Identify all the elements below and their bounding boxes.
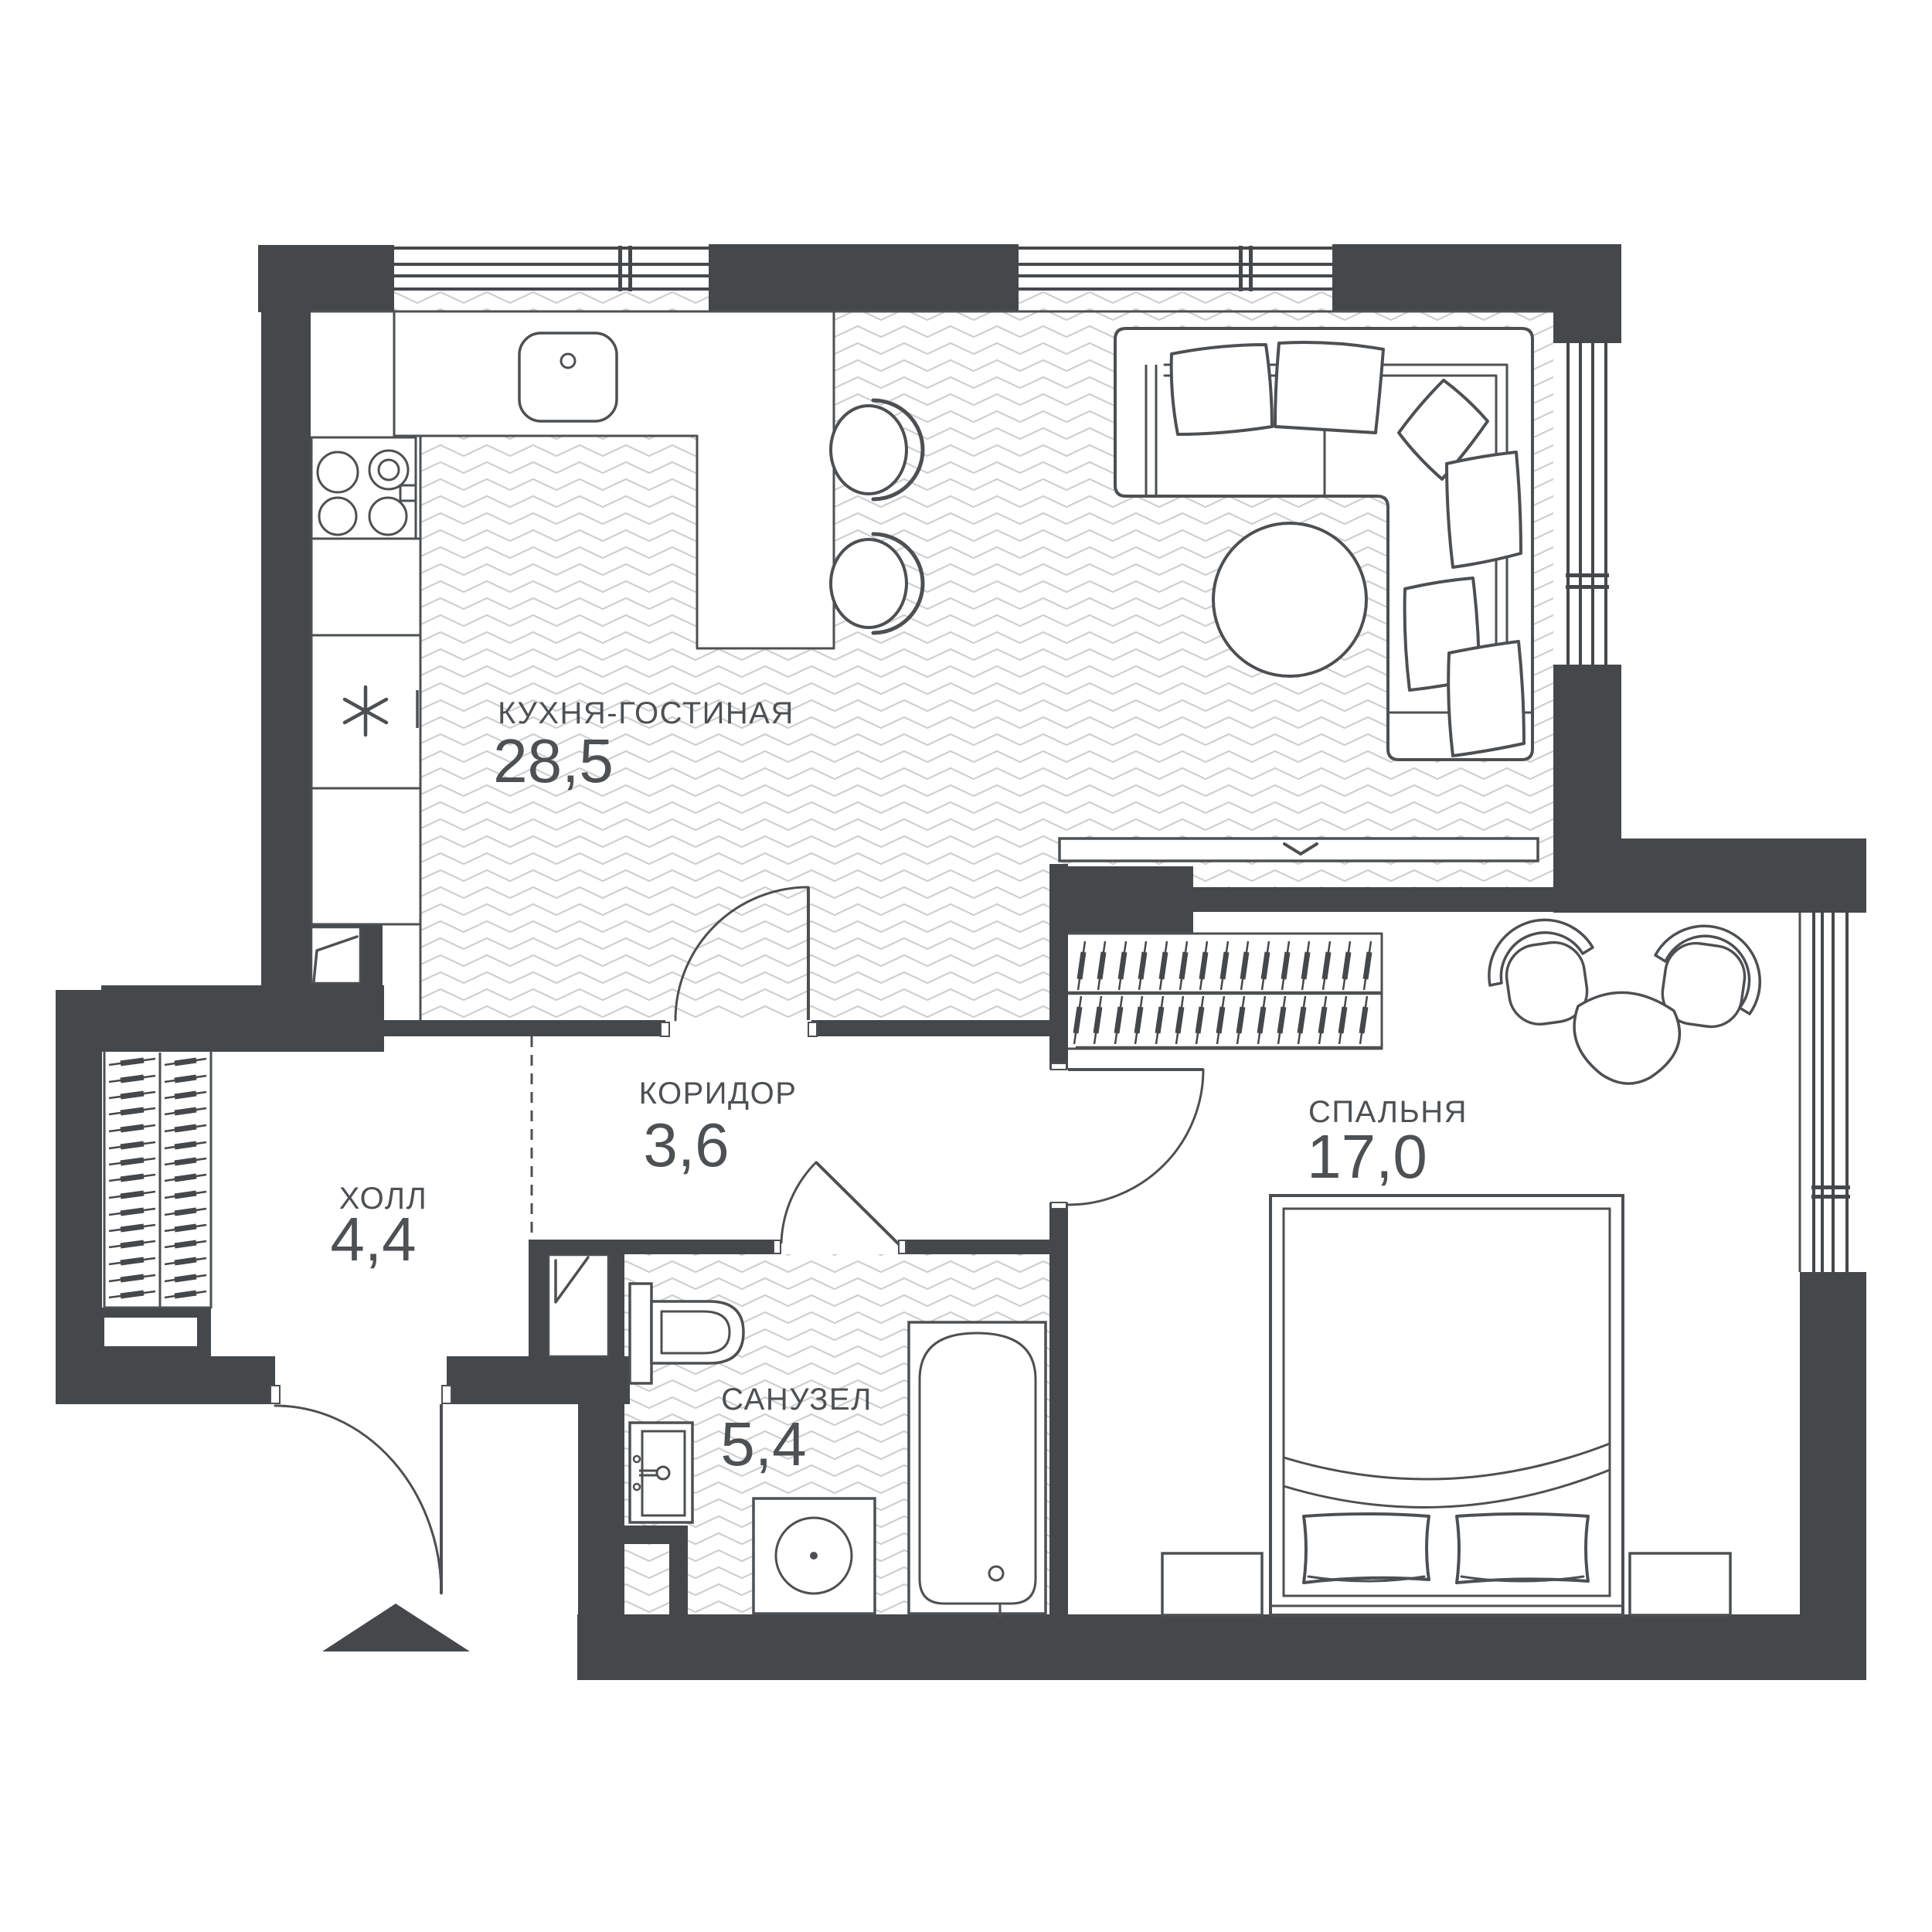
svg-text:28,5: 28,5 <box>493 726 614 795</box>
svg-text:КУХНЯ-ГОСТИНАЯ: КУХНЯ-ГОСТИНАЯ <box>498 696 794 730</box>
svg-text:КОРИДОР: КОРИДОР <box>639 1077 798 1111</box>
svg-text:3,6: 3,6 <box>643 1111 729 1179</box>
svg-text:17,0: 17,0 <box>1307 1122 1427 1191</box>
svg-text:4,4: 4,4 <box>330 1205 416 1274</box>
svg-text:5,4: 5,4 <box>720 1410 806 1478</box>
